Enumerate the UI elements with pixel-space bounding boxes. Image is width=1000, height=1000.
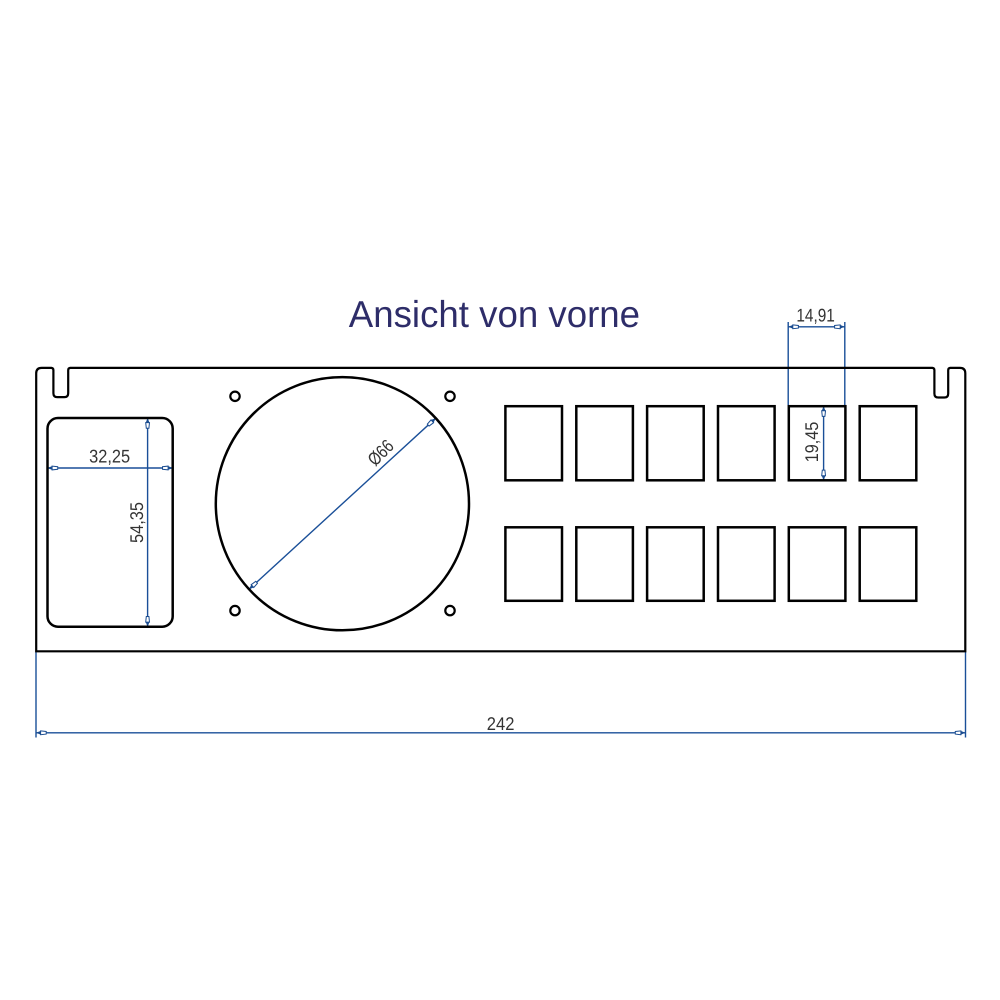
svg-text:54,35: 54,35 <box>126 502 147 543</box>
svg-text:242: 242 <box>487 713 515 734</box>
svg-text:Ø66: Ø66 <box>363 435 398 470</box>
svg-text:Ansicht von vorne: Ansicht von vorne <box>349 293 640 335</box>
svg-text:19,45: 19,45 <box>801 422 822 463</box>
svg-text:14,91: 14,91 <box>796 304 834 325</box>
svg-text:32,25: 32,25 <box>89 446 130 467</box>
